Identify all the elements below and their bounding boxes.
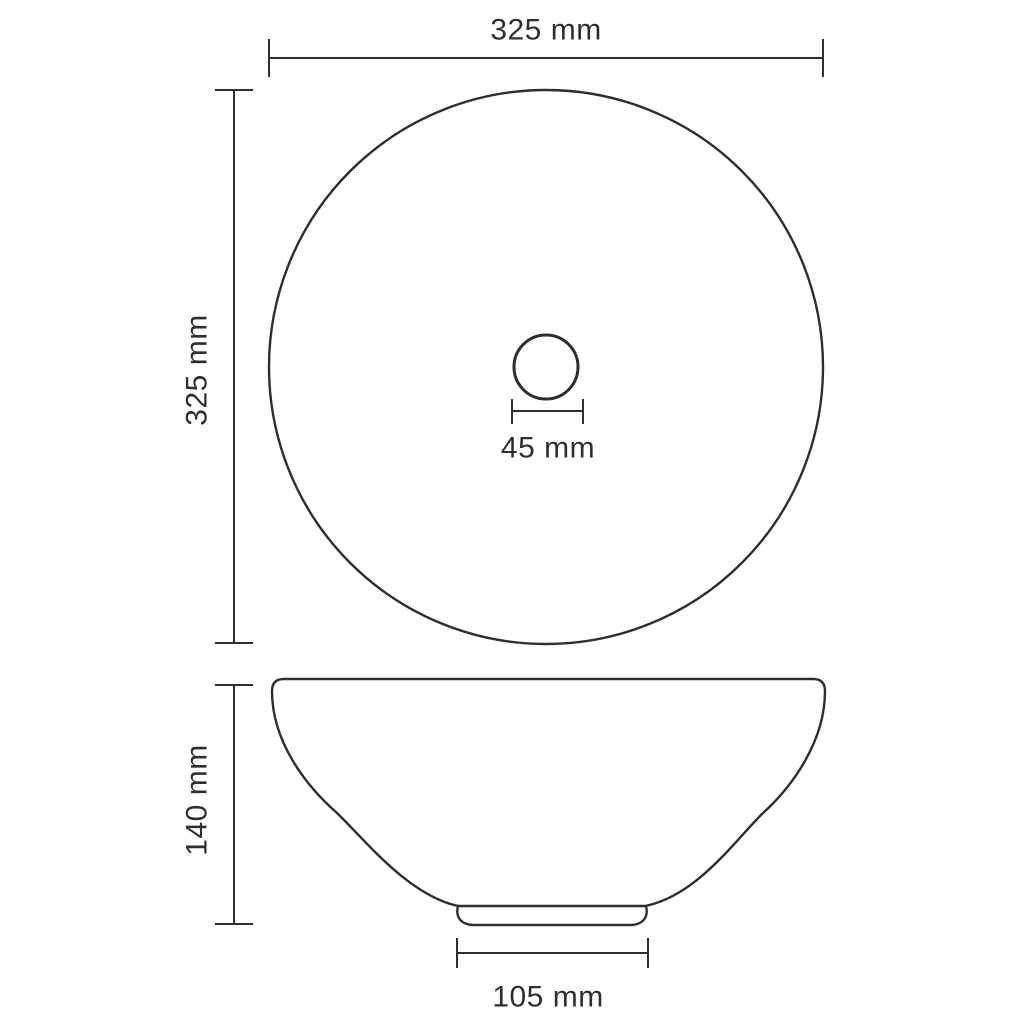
drawing-canvas: 325 mm 325 mm 45 mm 140 mm 105 mm	[0, 0, 1024, 1024]
product-outlines	[269, 90, 825, 925]
dimension-labels: 325 mm 325 mm 45 mm 140 mm 105 mm	[181, 14, 604, 1014]
top-view-drain-outline	[514, 335, 578, 399]
side-view-base-outline	[457, 906, 646, 925]
left-height-label: 325 mm	[181, 314, 214, 425]
top-width-label: 325 mm	[490, 14, 601, 47]
base-width-dimension	[457, 938, 648, 968]
dimension-drawing-page: 325 mm 325 mm 45 mm 140 mm 105 mm	[0, 0, 1024, 1024]
side-height-dimension	[215, 685, 253, 924]
side-height-label: 140 mm	[181, 744, 214, 855]
drain-width-label: 45 mm	[501, 432, 595, 465]
base-width-label: 105 mm	[492, 981, 603, 1014]
left-height-dimension	[215, 90, 253, 643]
drain-width-dimension	[512, 399, 583, 424]
top-view-basin-outline	[269, 90, 823, 644]
side-view-basin-outline	[272, 679, 825, 906]
